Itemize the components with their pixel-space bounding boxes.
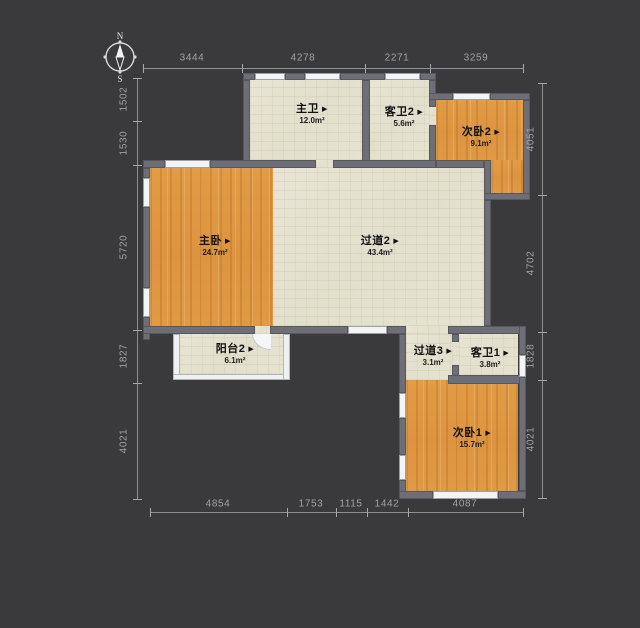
room-label-bedroom-1[interactable]: 次卧1▶ 15.7m² bbox=[453, 427, 492, 450]
floor-plan-canvas: N S bbox=[0, 0, 640, 628]
wall-segment bbox=[143, 168, 150, 178]
wall-segment bbox=[484, 200, 491, 326]
door-opening bbox=[255, 326, 270, 334]
room-link-arrow-icon[interactable]: ▶ bbox=[503, 350, 509, 357]
dim-label-left-0: 1502 bbox=[119, 87, 130, 112]
room-label-bedroom-2[interactable]: 次卧2▶ 9.1m² bbox=[462, 126, 501, 149]
wall-segment bbox=[243, 73, 255, 80]
wall-segment bbox=[429, 93, 453, 100]
wall-segment bbox=[143, 207, 150, 288]
room-name: 主卫 bbox=[296, 103, 319, 115]
dimension-tick bbox=[150, 508, 151, 517]
dim-label-right-1: 4702 bbox=[526, 251, 537, 276]
wall-segment bbox=[210, 160, 316, 168]
room-area: 3.1m² bbox=[414, 358, 453, 368]
dim-label-bottom-1: 1753 bbox=[299, 499, 324, 510]
window bbox=[399, 393, 406, 418]
compass-icon bbox=[100, 39, 140, 76]
wall-segment bbox=[270, 326, 348, 334]
door-opening bbox=[316, 160, 333, 168]
dimension-tick bbox=[133, 78, 142, 79]
dimension-tick bbox=[287, 508, 288, 517]
wall-segment bbox=[436, 160, 484, 168]
dimension-tick bbox=[242, 64, 243, 73]
dimension-tick bbox=[523, 508, 524, 517]
dimension-tick bbox=[133, 330, 142, 331]
wall-segment bbox=[490, 93, 530, 100]
wall-segment bbox=[399, 491, 433, 499]
room-label-master-bedroom[interactable]: 主卧▶ 24.7m² bbox=[199, 235, 231, 258]
window bbox=[165, 160, 210, 168]
wall-segment bbox=[285, 73, 305, 80]
room-area: 9.1m² bbox=[462, 139, 501, 149]
dimension-tick bbox=[365, 64, 366, 73]
room-name: 客卫1 bbox=[471, 347, 501, 359]
dim-label-bottom-2: 1115 bbox=[339, 499, 362, 510]
compass-north-label: N bbox=[117, 31, 124, 41]
room-label-master-bath[interactable]: 主卫▶ 12.0m² bbox=[296, 103, 328, 126]
wall-segment bbox=[420, 73, 436, 80]
room-floor-bedroom-2-ext[interactable] bbox=[491, 160, 523, 193]
room-link-arrow-icon[interactable]: ▶ bbox=[417, 109, 423, 116]
wall-segment bbox=[448, 326, 526, 334]
wall-segment bbox=[484, 193, 530, 200]
dimension-tick bbox=[538, 380, 547, 381]
dim-label-right-0: 4051 bbox=[526, 127, 537, 152]
wall-segment bbox=[143, 160, 165, 168]
wall-segment bbox=[399, 418, 406, 455]
dim-label-left-1: 1530 bbox=[119, 131, 130, 156]
dimension-tick bbox=[538, 195, 547, 196]
dim-label-left-3: 1827 bbox=[119, 344, 130, 369]
room-label-corridor-2[interactable]: 过道2▶ 43.4m² bbox=[361, 235, 400, 258]
dim-label-left-2: 5720 bbox=[119, 235, 130, 260]
dim-label-right-3: 4021 bbox=[526, 427, 537, 452]
dim-label-left-4: 4021 bbox=[119, 429, 130, 454]
dimension-tick bbox=[143, 64, 144, 73]
room-area: 24.7m² bbox=[199, 248, 231, 258]
room-name: 次卧2 bbox=[462, 126, 492, 138]
window bbox=[143, 178, 150, 207]
door-opening bbox=[429, 107, 436, 125]
room-area: 6.1m² bbox=[216, 356, 255, 366]
room-link-arrow-icon[interactable]: ▶ bbox=[485, 430, 491, 437]
dim-label-top-0: 3444 bbox=[180, 53, 205, 64]
wall-segment bbox=[333, 160, 436, 168]
dimension-line-right bbox=[542, 83, 543, 498]
room-link-arrow-icon[interactable]: ▶ bbox=[446, 348, 452, 355]
dim-label-bottom-3: 1442 bbox=[375, 499, 400, 510]
dimension-tick bbox=[336, 508, 337, 517]
door-opening bbox=[452, 342, 459, 365]
dim-label-top-3: 3259 bbox=[464, 53, 489, 64]
balcony-window-wall bbox=[283, 334, 290, 380]
dimension-tick bbox=[133, 499, 142, 500]
dimension-line-left bbox=[137, 78, 138, 499]
room-link-arrow-icon[interactable]: ▶ bbox=[494, 129, 500, 136]
window bbox=[255, 73, 285, 80]
window bbox=[399, 455, 406, 480]
wall-segment bbox=[243, 80, 250, 168]
room-name: 客卫2 bbox=[385, 106, 415, 118]
room-label-guest-bath-1[interactable]: 客卫1▶ 3.8m² bbox=[471, 347, 510, 370]
room-area: 15.7m² bbox=[453, 440, 492, 450]
room-label-guest-bath-2[interactable]: 客卫2▶ 5.6m² bbox=[385, 106, 424, 129]
door-opening bbox=[406, 326, 452, 334]
room-name: 过道2 bbox=[361, 235, 391, 247]
room-link-arrow-icon[interactable]: ▶ bbox=[322, 106, 328, 113]
dimension-tick bbox=[523, 64, 524, 73]
dimension-tick bbox=[538, 332, 547, 333]
wall-segment bbox=[387, 326, 406, 334]
dimension-tick bbox=[367, 508, 368, 517]
wall-segment bbox=[143, 326, 255, 334]
dim-label-bottom-4: 4087 bbox=[453, 499, 478, 510]
dimension-tick bbox=[133, 121, 142, 122]
room-area: 43.4m² bbox=[361, 248, 400, 258]
wall-segment bbox=[498, 491, 526, 499]
dim-label-top-1: 4278 bbox=[291, 53, 316, 64]
wall-segment bbox=[448, 375, 526, 384]
room-label-corridor-3[interactable]: 过道3▶ 3.1m² bbox=[414, 345, 453, 368]
room-area: 12.0m² bbox=[296, 116, 328, 126]
balcony-window-wall bbox=[173, 374, 290, 380]
room-name: 主卧 bbox=[199, 235, 222, 247]
dim-label-bottom-0: 4854 bbox=[206, 499, 231, 510]
room-link-arrow-icon[interactable]: ▶ bbox=[248, 346, 254, 353]
window bbox=[348, 326, 387, 334]
window bbox=[453, 93, 490, 100]
dim-label-right-2: 1828 bbox=[526, 344, 537, 369]
room-area: 5.6m² bbox=[385, 119, 424, 129]
room-link-arrow-icon[interactable]: ▶ bbox=[225, 238, 231, 245]
dimension-line-top bbox=[143, 68, 523, 69]
dimension-tick bbox=[430, 64, 431, 73]
wall-segment bbox=[399, 334, 406, 393]
room-name: 阳台2 bbox=[216, 343, 246, 355]
dim-label-top-2: 2271 bbox=[385, 53, 410, 64]
dimension-tick bbox=[133, 165, 142, 166]
room-area: 3.8m² bbox=[471, 360, 510, 370]
room-name: 次卧1 bbox=[453, 427, 483, 439]
wall-segment bbox=[340, 73, 385, 80]
window bbox=[385, 73, 420, 80]
room-name: 过道3 bbox=[414, 345, 444, 357]
dimension-tick bbox=[538, 498, 547, 499]
dimension-tick bbox=[538, 83, 547, 84]
window bbox=[305, 73, 340, 80]
dimension-tick bbox=[133, 383, 142, 384]
dimension-tick bbox=[408, 508, 409, 517]
room-link-arrow-icon[interactable]: ▶ bbox=[393, 238, 399, 245]
compass-rose bbox=[100, 39, 140, 76]
window bbox=[143, 288, 150, 317]
compass-south-label: S bbox=[117, 74, 122, 84]
room-label-balcony-2[interactable]: 阳台2▶ 6.1m² bbox=[216, 343, 255, 366]
wall-segment bbox=[452, 334, 459, 342]
wall-segment bbox=[362, 80, 370, 168]
